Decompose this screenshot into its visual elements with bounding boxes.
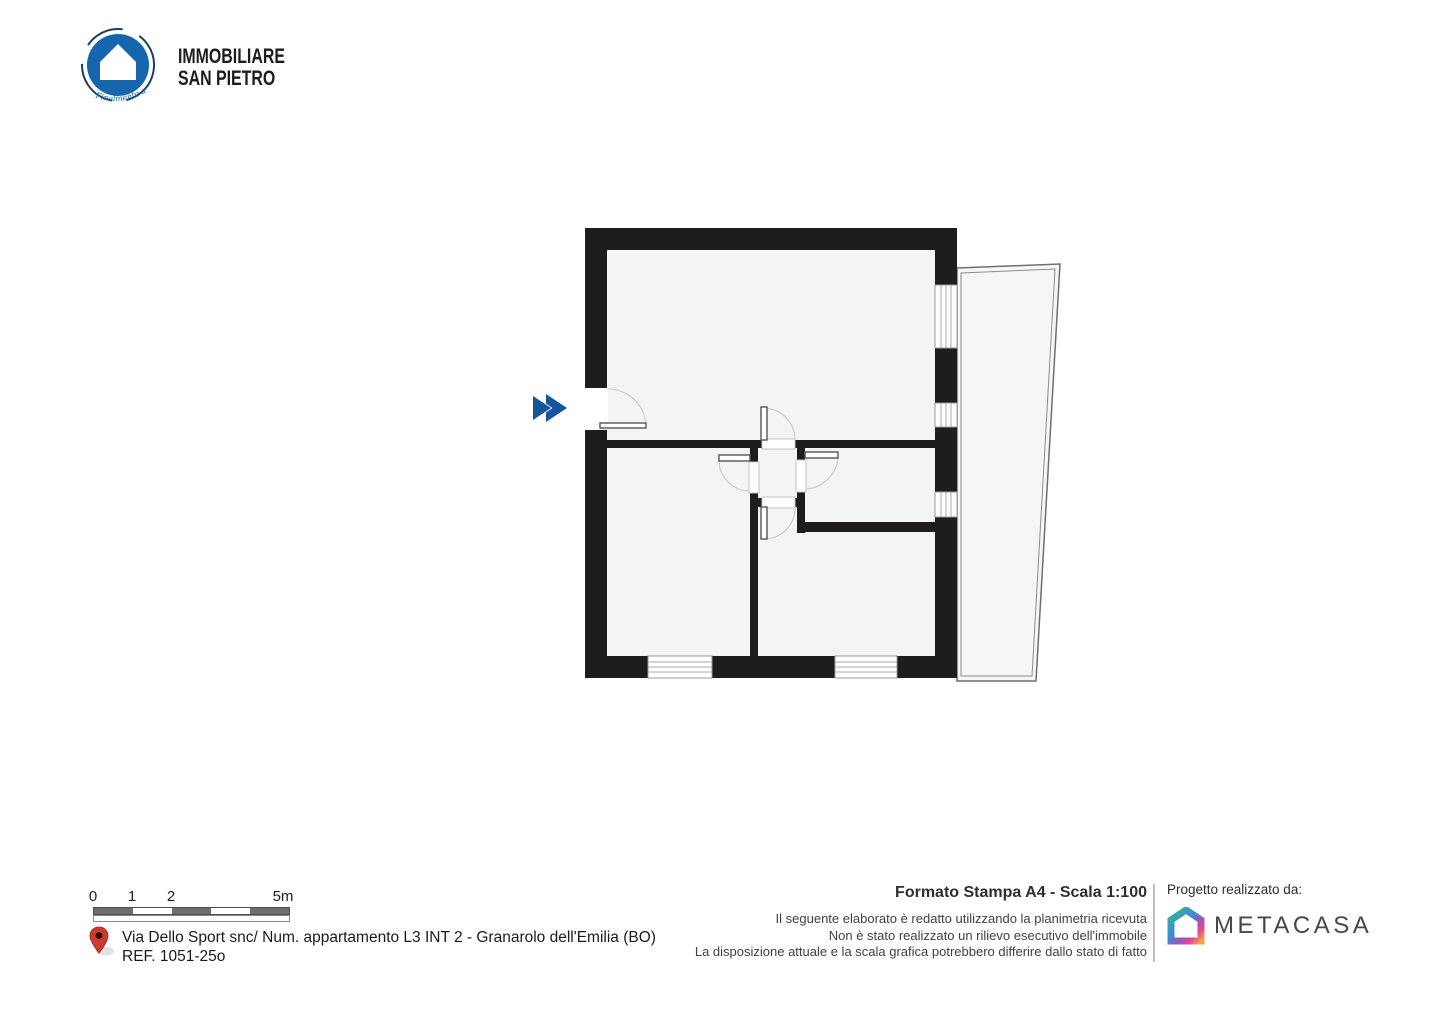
property-address: Via Dello Sport snc/ Num. appartamento L…	[122, 928, 656, 966]
credits-brand-name: METACASA	[1214, 912, 1372, 940]
agency-name-line1: IMMOBILIARE	[178, 46, 285, 68]
credits: Progetto realizzato da: METACASA	[1167, 882, 1407, 945]
disclaimer-line1: Il seguente elaborato è redatto utilizza…	[687, 911, 1147, 928]
balcony	[957, 264, 1060, 681]
house-in-circle-icon: Finalmente a Casa	[78, 22, 170, 114]
disclaimer-line2: Non è stato realizzato un rilievo esecut…	[687, 928, 1147, 945]
scale-bar-lower	[93, 915, 290, 922]
scale-label-0: 0	[89, 888, 97, 905]
floor-plan-sheet: Finalmente a Casa IMMOBILIARE SAN PIETRO	[0, 0, 1440, 1018]
scale-bar-labels: 0 1 2 5m	[88, 888, 308, 906]
address-line: Via Dello Sport snc/ Num. appartamento L…	[122, 928, 656, 947]
scale-bar-upper	[93, 907, 290, 915]
floor-plan-svg	[520, 200, 1080, 700]
agency-brand: Finalmente a Casa IMMOBILIARE SAN PIETRO	[78, 22, 323, 114]
footer-divider	[1153, 884, 1155, 962]
disclaimer: Il seguente elaborato è redatto utilizza…	[687, 911, 1147, 961]
apartment-floor	[589, 232, 953, 674]
double-chevron-right-icon	[533, 394, 567, 422]
agency-name-line2: SAN PIETRO	[178, 68, 285, 90]
disclaimer-line3: La disposizione attuale e la scala grafi…	[687, 944, 1147, 961]
credits-label: Progetto realizzato da:	[1167, 882, 1407, 897]
scale-label-5m: 5m	[273, 888, 294, 905]
scale-label-2: 2	[167, 888, 175, 905]
scale-bar: 0 1 2 5m	[88, 888, 308, 906]
print-info: Formato Stampa A4 - Scala 1:100 Il segue…	[687, 884, 1147, 961]
scale-label-1: 1	[128, 888, 136, 905]
map-pin-icon	[88, 926, 118, 956]
reference-number: REF. 1051-25o	[122, 947, 656, 966]
agency-name: IMMOBILIARE SAN PIETRO	[178, 46, 285, 114]
floor-plan-drawing	[520, 200, 1080, 700]
gradient-house-icon	[1167, 907, 1205, 945]
print-format-title: Formato Stampa A4 - Scala 1:100	[687, 884, 1147, 902]
